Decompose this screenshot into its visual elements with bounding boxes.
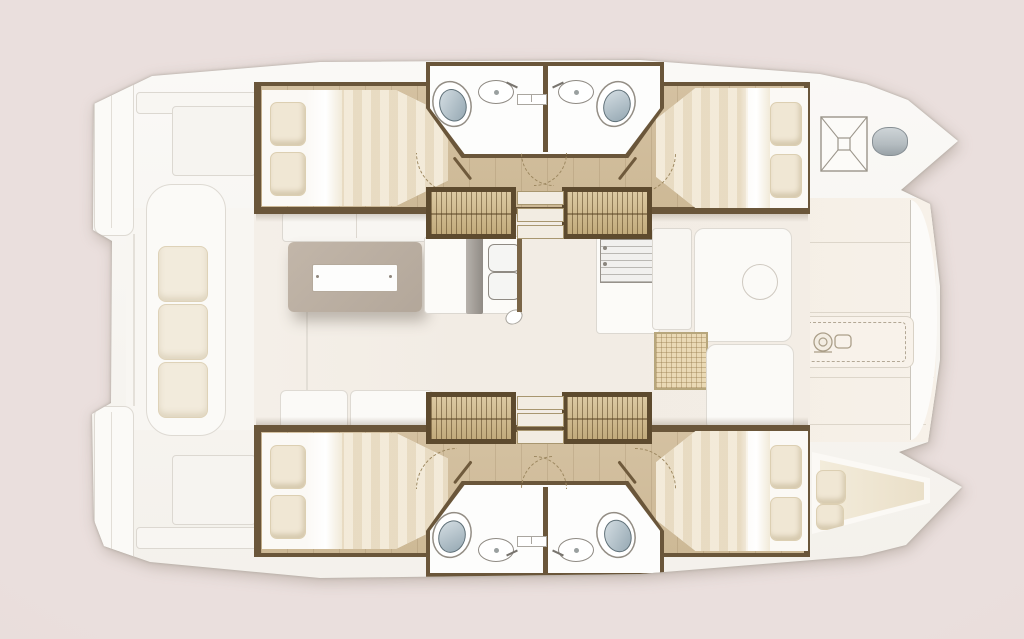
towel-shelf (517, 94, 547, 105)
washbasin (478, 538, 514, 562)
woven-mat-panel (654, 332, 708, 390)
upper-aft-cabin-bed (262, 90, 448, 206)
pillow (770, 497, 802, 541)
pillow (270, 445, 306, 489)
boat-outline-shadow (0, 0, 1024, 639)
duvet-fold (306, 90, 342, 206)
table-insert (312, 264, 398, 292)
companionway-steps-upper-fwd (562, 187, 652, 239)
lower-forward-cabin-bed (656, 431, 808, 551)
towel-shelf (517, 536, 547, 547)
companionway-steps-lower-aft (426, 392, 516, 444)
heads-divider (543, 487, 548, 575)
pillow (816, 470, 846, 504)
platform-step-line (111, 412, 112, 564)
cockpit-cushion (158, 304, 208, 360)
catamaran-deck (0, 0, 1024, 639)
mast-post (466, 234, 483, 314)
deck-hatch-icon (820, 116, 868, 172)
pillow (270, 152, 306, 196)
sink-basin (488, 244, 520, 272)
duvet-fold (740, 431, 770, 551)
central-steps-upper (517, 189, 562, 241)
lounge-side-seat (652, 228, 692, 330)
floorplan-canvas (0, 0, 1024, 639)
swim-platform-lower (94, 406, 134, 572)
galley-partition (517, 238, 522, 312)
pillow (270, 102, 306, 146)
cockpit-cushion (158, 362, 208, 418)
table-latch (389, 275, 392, 278)
stove-top (600, 239, 656, 283)
cockpit-panel-upper (172, 106, 256, 176)
transom-line (133, 234, 135, 406)
shelf-line (531, 537, 532, 544)
upper-forward-cabin-bed (656, 88, 808, 208)
cockpit-cushion (158, 246, 208, 302)
companionway-steps-lower-fwd (562, 392, 652, 444)
central-steps-lower (517, 394, 562, 446)
companionway-steps-upper-aft (426, 187, 516, 239)
cockpit-panel-lower (172, 455, 256, 525)
washbasin (558, 538, 594, 562)
pillow (770, 445, 802, 489)
pillow (770, 154, 802, 198)
table-latch (316, 275, 319, 278)
bow-berth (812, 452, 930, 534)
lower-aft-cabin-bed (262, 433, 448, 549)
round-hatch-outline (742, 264, 778, 300)
platform-step-line (111, 76, 112, 228)
sink-basin (488, 272, 520, 300)
duvet-fold (740, 88, 770, 208)
deck-cover-icon (872, 127, 908, 156)
duvet-fold (306, 433, 342, 549)
swim-platform-upper (94, 70, 134, 236)
pillow (270, 495, 306, 539)
stove-knob (603, 262, 607, 266)
pillow (816, 504, 844, 530)
washbasin (558, 80, 594, 104)
pillow (770, 102, 802, 146)
windlass-icon (810, 327, 856, 357)
cockpit-coaming-lower (136, 527, 266, 549)
heads-divider (543, 64, 548, 152)
stove-knob (603, 246, 607, 250)
shelf-line (531, 95, 532, 102)
